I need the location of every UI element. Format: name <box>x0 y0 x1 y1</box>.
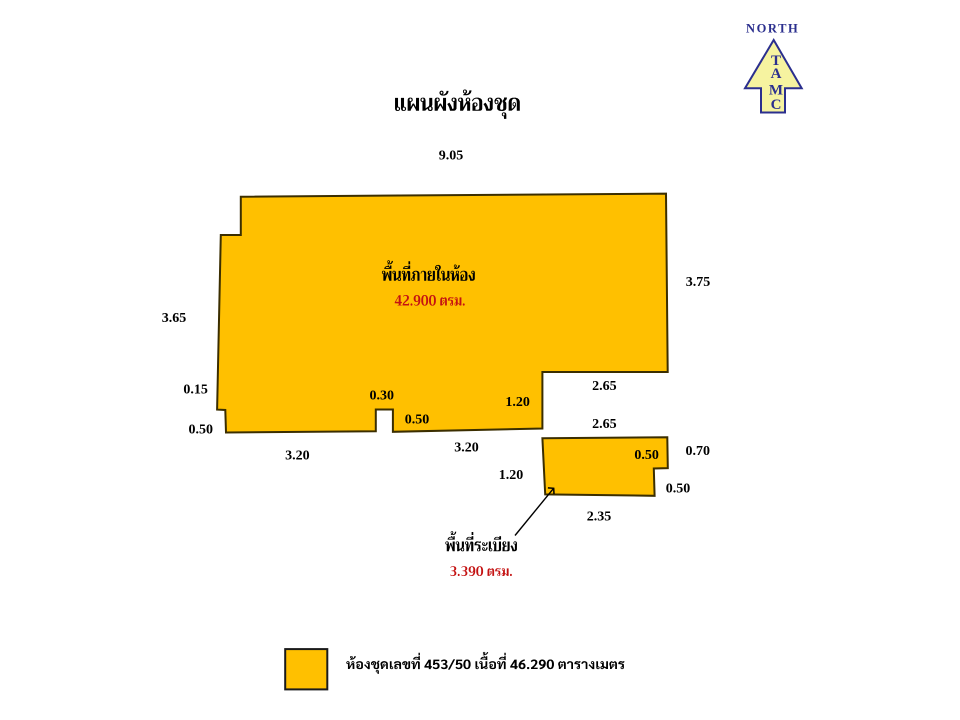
svg-text:3.20: 3.20 <box>454 441 479 456</box>
svg-text:3.20: 3.20 <box>285 448 310 463</box>
svg-text:0.70: 0.70 <box>686 444 711 459</box>
svg-text:2.65: 2.65 <box>592 379 617 394</box>
svg-text:0.50: 0.50 <box>634 448 659 463</box>
svg-text:0.30: 0.30 <box>369 389 394 404</box>
svg-text:3.75: 3.75 <box>686 275 711 290</box>
svg-text:0.50: 0.50 <box>405 412 430 427</box>
svg-text:2.65: 2.65 <box>592 417 617 432</box>
svg-text:1.20: 1.20 <box>499 468 524 483</box>
svg-text:0.50: 0.50 <box>189 423 214 438</box>
svg-text:NORTH: NORTH <box>746 22 799 36</box>
svg-text:2.35: 2.35 <box>587 510 612 525</box>
svg-text:3.65: 3.65 <box>162 311 187 326</box>
svg-text:1.20: 1.20 <box>505 395 530 410</box>
svg-text:C: C <box>771 97 782 113</box>
svg-text:0.50: 0.50 <box>666 482 691 497</box>
svg-text:9.05: 9.05 <box>439 149 464 164</box>
svg-text:0.15: 0.15 <box>183 383 208 398</box>
svg-text:A: A <box>771 66 782 82</box>
